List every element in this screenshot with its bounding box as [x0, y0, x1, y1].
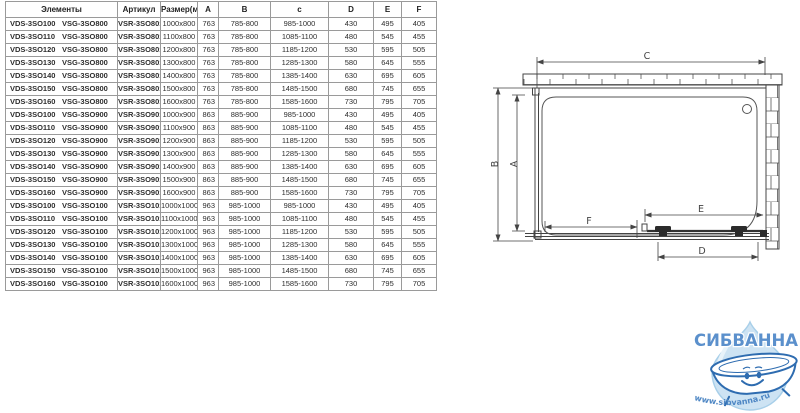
cell: 480 [329, 31, 374, 44]
cell: 863 [198, 148, 219, 161]
cell: VSR-3SO1010 [118, 200, 161, 213]
column-header: Размер(мм) [161, 2, 198, 18]
cell: 745 [374, 174, 402, 187]
vds-code: VDS-3SO110 [6, 122, 62, 134]
cell: 963 [198, 252, 219, 265]
vsg-code: VSG-3SO900 [62, 136, 108, 145]
cell: 1600x800 [161, 96, 198, 109]
cell: 705 [402, 278, 437, 291]
cell: 530 [329, 135, 374, 148]
cell: 1085-1100 [271, 122, 329, 135]
sibvanna-logo: СИБВАННА www.sibvanna.ru [660, 314, 800, 413]
vds-code: VDS-3SO100 [6, 109, 62, 121]
cell: 863 [198, 161, 219, 174]
cell: 680 [329, 83, 374, 96]
cell: 985-1000 [219, 239, 271, 252]
vds-code: VDS-3SO130 [6, 148, 62, 160]
cell: 1085-1100 [271, 213, 329, 226]
vsg-code: VSG-3SO900 [62, 123, 108, 132]
cell: 985-1000 [219, 252, 271, 265]
table-row: VDS-3SO120VSG-3SO800VSR-3SO80121200x8007… [6, 44, 437, 57]
table-row: VDS-3SO110VSG-3SO100VSR-3SO10111100x1000… [6, 213, 437, 226]
cell: 645 [374, 148, 402, 161]
cell-elements: VDS-3SO140VSG-3SO100 [6, 252, 118, 265]
cell: 1400x800 [161, 70, 198, 83]
cell: 863 [198, 109, 219, 122]
cell-elements: VDS-3SO120VSG-3SO100 [6, 226, 118, 239]
cell-elements: VDS-3SO150VSG-3SO800 [6, 83, 118, 96]
cell: 430 [329, 18, 374, 31]
cell: 963 [198, 239, 219, 252]
cell: 1300x800 [161, 57, 198, 70]
table-header: ЭлементыАртикулРазмер(мм)ABcDEF [6, 2, 437, 18]
cell: 1285-1300 [271, 239, 329, 252]
cell: VSR-3SO9010 [118, 109, 161, 122]
vsg-code: VSG-3SO800 [62, 32, 108, 41]
cell: 595 [374, 135, 402, 148]
cell: VSR-3SO1012 [118, 226, 161, 239]
vds-code: VDS-3SO100 [6, 18, 62, 30]
cell: 545 [374, 122, 402, 135]
vsg-code: VSG-3SO100 [62, 214, 108, 223]
table-row: VDS-3SO130VSG-3SO800VSR-3SO80131300x8007… [6, 57, 437, 70]
cell: 730 [329, 96, 374, 109]
cell-elements: VDS-3SO130VSG-3SO100 [6, 239, 118, 252]
cell: 1100x1000 [161, 213, 198, 226]
cell: 985-1000 [219, 200, 271, 213]
vsg-code: VSG-3SO100 [62, 253, 108, 262]
cell: 695 [374, 252, 402, 265]
cell: 885-900 [219, 187, 271, 200]
vsg-code: VSG-3SO900 [62, 175, 108, 184]
cell: 430 [329, 109, 374, 122]
table-row: VDS-3SO150VSG-3SO100VSR-3SO10151500x1000… [6, 265, 437, 278]
table-row: VDS-3SO120VSG-3SO900VSR-3SO90121200x9008… [6, 135, 437, 148]
cell: 963 [198, 265, 219, 278]
cell: 863 [198, 187, 219, 200]
cell: 645 [374, 57, 402, 70]
cell-elements: VDS-3SO120VSG-3SO800 [6, 44, 118, 57]
cell: VSR-3SO8010 [118, 18, 161, 31]
cell: 555 [402, 148, 437, 161]
table-row: VDS-3SO100VSG-3SO100VSR-3SO10101000x1000… [6, 200, 437, 213]
vsg-code: VSG-3SO900 [62, 162, 108, 171]
vds-code: VDS-3SO150 [6, 174, 62, 186]
cell: 1500x900 [161, 174, 198, 187]
cell-elements: VDS-3SO140VSG-3SO800 [6, 70, 118, 83]
spec-table: ЭлементыАртикулРазмер(мм)ABcDEF VDS-3SO1… [5, 1, 437, 291]
cell-elements: VDS-3SO160VSG-3SO100 [6, 278, 118, 291]
cell: 985-1000 [219, 226, 271, 239]
cell-elements: VDS-3SO160VSG-3SO900 [6, 187, 118, 200]
table-row: VDS-3SO100VSG-3SO800VSR-3SO80101000x8007… [6, 18, 437, 31]
cell: 1000x1000 [161, 200, 198, 213]
cell: 580 [329, 57, 374, 70]
cell: 763 [198, 18, 219, 31]
cell: 495 [374, 200, 402, 213]
cell: 530 [329, 44, 374, 57]
cell: 785-800 [219, 96, 271, 109]
drain-hole [743, 105, 752, 114]
vds-code: VDS-3SO160 [6, 96, 62, 108]
table-row: VDS-3SO130VSG-3SO100VSR-3SO10131300x1000… [6, 239, 437, 252]
cell: 705 [402, 187, 437, 200]
cell: 1485-1500 [271, 174, 329, 187]
dim-label-f: F [586, 216, 591, 227]
cell: VSR-3SO8011 [118, 31, 161, 44]
table-row: VDS-3SO150VSG-3SO900VSR-3SO90151500x9008… [6, 174, 437, 187]
cell: 795 [374, 187, 402, 200]
cell: 863 [198, 174, 219, 187]
cell: 1300x900 [161, 148, 198, 161]
vds-code: VDS-3SO140 [6, 252, 62, 264]
table-row: VDS-3SO110VSG-3SO800VSR-3SO80111100x8007… [6, 31, 437, 44]
cell: VSR-3SO8012 [118, 44, 161, 57]
cell: 1485-1500 [271, 83, 329, 96]
vds-code: VDS-3SO140 [6, 161, 62, 173]
vsg-code: VSG-3SO900 [62, 110, 108, 119]
cell: VSR-3SO8015 [118, 83, 161, 96]
cell: VSR-3SO1015 [118, 265, 161, 278]
cell: 985-1000 [219, 265, 271, 278]
cell: 1200x900 [161, 135, 198, 148]
cell: 630 [329, 252, 374, 265]
cell: VSR-3SO1014 [118, 252, 161, 265]
cell: 745 [374, 83, 402, 96]
cell-elements: VDS-3SO160VSG-3SO800 [6, 96, 118, 109]
cell: 785-800 [219, 83, 271, 96]
vsg-code: VSG-3SO900 [62, 188, 108, 197]
cell: 430 [329, 200, 374, 213]
vds-code: VDS-3SO150 [6, 265, 62, 277]
dim-label-d: D [698, 246, 705, 257]
cell: 605 [402, 161, 437, 174]
cell: VSR-3SO8013 [118, 57, 161, 70]
vsg-code: VSG-3SO800 [62, 97, 108, 106]
vds-code: VDS-3SO110 [6, 31, 62, 43]
cell: 695 [374, 70, 402, 83]
cell: VSR-3SO9012 [118, 135, 161, 148]
vsg-code: VSG-3SO100 [62, 201, 108, 210]
vds-code: VDS-3SO160 [6, 187, 62, 199]
column-header: F [402, 2, 437, 18]
cell: 785-800 [219, 44, 271, 57]
cell-elements: VDS-3SO110VSG-3SO800 [6, 31, 118, 44]
cell: 763 [198, 31, 219, 44]
column-header: Артикул [118, 2, 161, 18]
cell: 405 [402, 200, 437, 213]
dim-label-e: E [698, 204, 704, 215]
cell: VSR-3SO9011 [118, 122, 161, 135]
vds-code: VDS-3SO130 [6, 239, 62, 251]
cell: 580 [329, 239, 374, 252]
cell-elements: VDS-3SO100VSG-3SO100 [6, 200, 118, 213]
column-header: Элементы [6, 2, 118, 18]
enclosure-frame [525, 88, 769, 242]
cell: 1600x1000 [161, 278, 198, 291]
cell-elements: VDS-3SO130VSG-3SO800 [6, 57, 118, 70]
cell: 680 [329, 174, 374, 187]
cell: 1185-1200 [271, 135, 329, 148]
dim-label-c: C [644, 51, 651, 62]
cell: VSR-3SO1013 [118, 239, 161, 252]
cell: 1200x800 [161, 44, 198, 57]
cell: 763 [198, 83, 219, 96]
cell: 763 [198, 57, 219, 70]
cell: 680 [329, 265, 374, 278]
cell: 655 [402, 83, 437, 96]
cell-elements: VDS-3SO100VSG-3SO800 [6, 18, 118, 31]
vds-code: VDS-3SO100 [6, 200, 62, 212]
cell: 985-1000 [219, 213, 271, 226]
cell: 885-900 [219, 148, 271, 161]
column-header: E [374, 2, 402, 18]
vsg-code: VSG-3SO800 [62, 19, 108, 28]
cell: 1100x800 [161, 31, 198, 44]
vds-code: VDS-3SO120 [6, 135, 62, 147]
cell: VSR-3SO1011 [118, 213, 161, 226]
vsg-code: VSG-3SO100 [62, 266, 108, 275]
cell: 1585-1600 [271, 278, 329, 291]
dim-label-a: A [509, 160, 520, 167]
cell: 595 [374, 44, 402, 57]
cell: 863 [198, 122, 219, 135]
cell: 785-800 [219, 31, 271, 44]
vds-code: VDS-3SO120 [6, 44, 62, 56]
cell: 985-1000 [219, 278, 271, 291]
dim-label-b: B [490, 161, 501, 168]
table-row: VDS-3SO140VSG-3SO900VSR-3SO90141400x9008… [6, 161, 437, 174]
cell: 985-1000 [271, 18, 329, 31]
cell: 795 [374, 278, 402, 291]
vsg-code: VSG-3SO900 [62, 149, 108, 158]
cell: 863 [198, 135, 219, 148]
cell: 1585-1600 [271, 187, 329, 200]
cell: 785-800 [219, 57, 271, 70]
cell-elements: VDS-3SO150VSG-3SO100 [6, 265, 118, 278]
cell: 1285-1300 [271, 148, 329, 161]
wall-right [766, 85, 779, 249]
cell: 885-900 [219, 135, 271, 148]
wall-top [523, 74, 782, 85]
cell: 455 [402, 213, 437, 226]
cell: 605 [402, 70, 437, 83]
vds-code: VDS-3SO130 [6, 57, 62, 69]
vsg-code: VSG-3SO800 [62, 45, 108, 54]
cell: 1385-1400 [271, 161, 329, 174]
table-row: VDS-3SO140VSG-3SO800VSR-3SO80141400x8007… [6, 70, 437, 83]
cell: 730 [329, 187, 374, 200]
cell: 1600x900 [161, 187, 198, 200]
cell: 1385-1400 [271, 70, 329, 83]
cell: VSR-3SO8014 [118, 70, 161, 83]
cell: 785-800 [219, 18, 271, 31]
cell: VSR-3SO9016 [118, 187, 161, 200]
cell: 495 [374, 109, 402, 122]
cell: 1485-1500 [271, 265, 329, 278]
cell: 655 [402, 174, 437, 187]
cell: 745 [374, 265, 402, 278]
cell: 695 [374, 161, 402, 174]
cell: 405 [402, 109, 437, 122]
cell: 763 [198, 96, 219, 109]
table-row: VDS-3SO160VSG-3SO800VSR-3SO80161600x8007… [6, 96, 437, 109]
cell: 580 [329, 148, 374, 161]
cell: 405 [402, 18, 437, 31]
cell: 885-900 [219, 109, 271, 122]
cell: 963 [198, 226, 219, 239]
cell: 1385-1400 [271, 252, 329, 265]
vsg-code: VSG-3SO800 [62, 84, 108, 93]
cell: 505 [402, 44, 437, 57]
cell: 645 [374, 239, 402, 252]
cell: 630 [329, 161, 374, 174]
cell: 1500x800 [161, 83, 198, 96]
cell-elements: VDS-3SO110VSG-3SO900 [6, 122, 118, 135]
vsg-code: VSG-3SO800 [62, 58, 108, 67]
table-row: VDS-3SO110VSG-3SO900VSR-3SO90111100x9008… [6, 122, 437, 135]
table-row: VDS-3SO150VSG-3SO800VSR-3SO80151500x8007… [6, 83, 437, 96]
column-header: D [329, 2, 374, 18]
cell: 1085-1100 [271, 31, 329, 44]
column-header: B [219, 2, 271, 18]
table-row: VDS-3SO120VSG-3SO100VSR-3SO10121200x1000… [6, 226, 437, 239]
cell: 963 [198, 200, 219, 213]
cell: 655 [402, 265, 437, 278]
table-row: VDS-3SO160VSG-3SO100VSR-3SO10161600x1000… [6, 278, 437, 291]
cell: 505 [402, 135, 437, 148]
vds-code: VDS-3SO120 [6, 226, 62, 238]
cell-elements: VDS-3SO150VSG-3SO900 [6, 174, 118, 187]
cell: 1000x900 [161, 109, 198, 122]
table-row: VDS-3SO100VSG-3SO900VSR-3SO90101000x9008… [6, 109, 437, 122]
shower-tray [542, 97, 757, 235]
cell: 1400x900 [161, 161, 198, 174]
cell: 545 [374, 31, 402, 44]
cell: 605 [402, 252, 437, 265]
vds-code: VDS-3SO150 [6, 83, 62, 95]
column-header: c [271, 2, 329, 18]
cell: 530 [329, 226, 374, 239]
cell: 480 [329, 213, 374, 226]
cell: 963 [198, 278, 219, 291]
cell: 1500x1000 [161, 265, 198, 278]
cell: VSR-3SO9015 [118, 174, 161, 187]
cell: 545 [374, 213, 402, 226]
technical-diagram: C B A F E D [485, 46, 797, 278]
cell: 1585-1600 [271, 96, 329, 109]
cell: 555 [402, 239, 437, 252]
cell-elements: VDS-3SO130VSG-3SO900 [6, 148, 118, 161]
cell-elements: VDS-3SO100VSG-3SO900 [6, 109, 118, 122]
cell: 495 [374, 18, 402, 31]
vsg-code: VSG-3SO800 [62, 71, 108, 80]
cell-elements: VDS-3SO120VSG-3SO900 [6, 135, 118, 148]
cell: 1200x1000 [161, 226, 198, 239]
cell: 595 [374, 226, 402, 239]
cell-elements: VDS-3SO110VSG-3SO100 [6, 213, 118, 226]
cell: 455 [402, 31, 437, 44]
vds-code: VDS-3SO140 [6, 70, 62, 82]
cell: 785-800 [219, 70, 271, 83]
vsg-code: VSG-3SO100 [62, 279, 108, 288]
cell: 455 [402, 122, 437, 135]
cell: 730 [329, 278, 374, 291]
cell: 1285-1300 [271, 57, 329, 70]
cell: 1000x800 [161, 18, 198, 31]
table-row: VDS-3SO160VSG-3SO900VSR-3SO90161600x9008… [6, 187, 437, 200]
vds-code: VDS-3SO110 [6, 213, 62, 225]
cell: 1100x900 [161, 122, 198, 135]
cell: 985-1000 [271, 109, 329, 122]
cell: 630 [329, 70, 374, 83]
cell: 763 [198, 70, 219, 83]
cell: 1400x1000 [161, 252, 198, 265]
cell: 1185-1200 [271, 226, 329, 239]
cell: 885-900 [219, 161, 271, 174]
cell: VSR-3SO9013 [118, 148, 161, 161]
cell: 885-900 [219, 122, 271, 135]
cell: VSR-3SO8016 [118, 96, 161, 109]
cell: 1185-1200 [271, 44, 329, 57]
column-header: A [198, 2, 219, 18]
cell: 480 [329, 122, 374, 135]
cell: 795 [374, 96, 402, 109]
cell: 985-1000 [271, 200, 329, 213]
cell: VSR-3SO9014 [118, 161, 161, 174]
cell: 963 [198, 213, 219, 226]
cell: 555 [402, 57, 437, 70]
cell: 885-900 [219, 174, 271, 187]
table-row: VDS-3SO130VSG-3SO900VSR-3SO90131300x9008… [6, 148, 437, 161]
vsg-code: VSG-3SO100 [62, 240, 108, 249]
cell: 705 [402, 96, 437, 109]
cell: VSR-3SO1016 [118, 278, 161, 291]
table-row: VDS-3SO140VSG-3SO100VSR-3SO10141400x1000… [6, 252, 437, 265]
cell: 1300x1000 [161, 239, 198, 252]
cell: 763 [198, 44, 219, 57]
brand-name: СИБВАННА [694, 331, 799, 351]
vds-code: VDS-3SO160 [6, 278, 62, 290]
cell: 505 [402, 226, 437, 239]
vsg-code: VSG-3SO100 [62, 227, 108, 236]
cell-elements: VDS-3SO140VSG-3SO900 [6, 161, 118, 174]
